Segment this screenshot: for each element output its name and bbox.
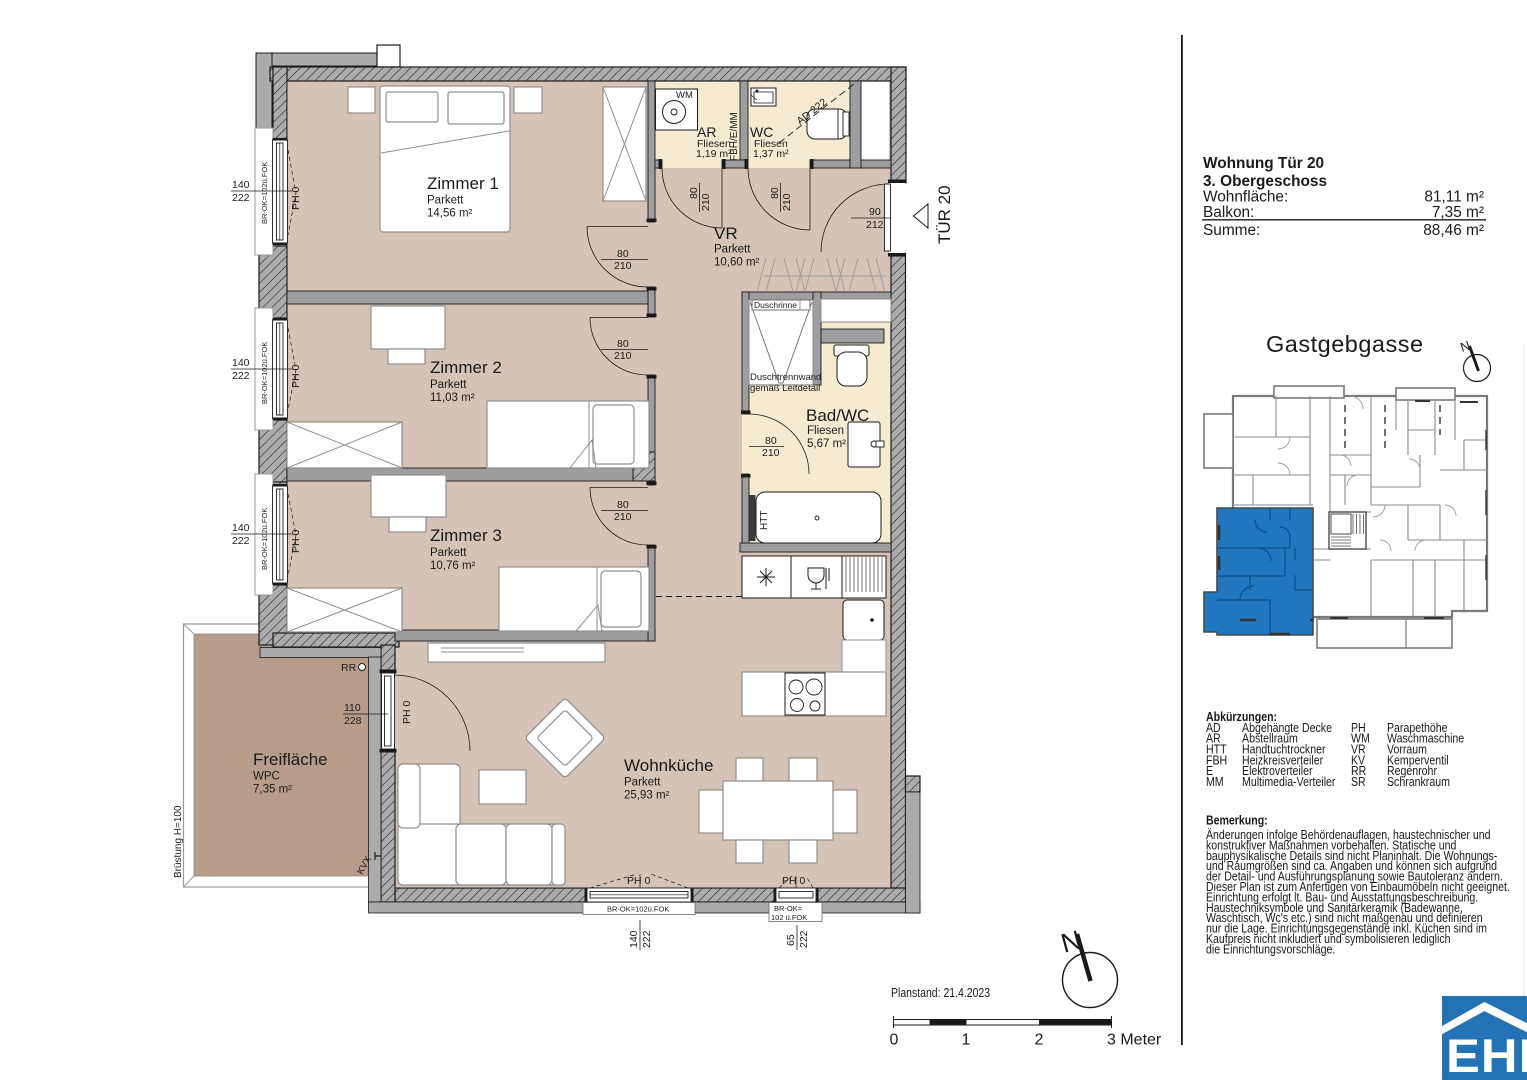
svg-text:1: 1 — [962, 1032, 971, 1049]
svg-text:Planstand: 21.4.2023: Planstand: 21.4.2023 — [891, 986, 990, 1000]
svg-text:BR-OK=102ü.FOK: BR-OK=102ü.FOK — [260, 508, 269, 570]
svg-text:228: 228 — [344, 715, 362, 727]
svg-text:Balkon:: Balkon: — [1203, 204, 1254, 221]
svg-text:BR-OK=102ü.FOK: BR-OK=102ü.FOK — [607, 905, 669, 914]
svg-text:TÜR 20: TÜR 20 — [935, 185, 954, 244]
svg-text:10,60 m²: 10,60 m² — [714, 257, 760, 269]
svg-text:212: 212 — [866, 219, 884, 231]
svg-text:10,76 m²: 10,76 m² — [430, 560, 476, 572]
svg-text:3. Obergeschoss: 3. Obergeschoss — [1203, 173, 1327, 190]
svg-text:81,11 m²: 81,11 m² — [1424, 188, 1484, 205]
svg-text:222: 222 — [232, 535, 250, 547]
svg-text:PH 0: PH 0 — [627, 875, 651, 887]
svg-text:7,35 m²: 7,35 m² — [1432, 204, 1484, 221]
svg-text:222: 222 — [232, 370, 250, 382]
svg-text:Duschrinne: Duschrinne — [754, 300, 797, 310]
svg-text:RR: RR — [341, 662, 357, 674]
svg-text:Gastgebgasse: Gastgebgasse — [1266, 331, 1424, 357]
svg-text:7,35 m²: 7,35 m² — [253, 784, 292, 796]
svg-text:Bemerkung:: Bemerkung: — [1206, 814, 1268, 828]
svg-text:gemäß Leitdetail: gemäß Leitdetail — [750, 383, 820, 394]
svg-text:Multimedia-Verteiler: Multimedia-Verteiler — [1242, 775, 1336, 789]
svg-text:VR: VR — [714, 224, 738, 243]
svg-text:210: 210 — [614, 511, 632, 523]
svg-text:88,46 m²: 88,46 m² — [1423, 222, 1484, 239]
svg-text:PH 0: PH 0 — [290, 186, 302, 210]
svg-text:Summe:: Summe: — [1203, 222, 1260, 239]
svg-text:Parkett: Parkett — [624, 777, 661, 789]
svg-text:Wohnfläche:: Wohnfläche: — [1203, 188, 1288, 205]
svg-text:Duschtrennwand: Duschtrennwand — [750, 372, 821, 383]
svg-text:80: 80 — [617, 338, 629, 350]
svg-text:2: 2 — [1035, 1032, 1044, 1049]
svg-text:11,03 m²: 11,03 m² — [430, 392, 475, 404]
svg-text:110: 110 — [344, 702, 361, 714]
svg-text:PH 0: PH 0 — [290, 364, 302, 388]
svg-text:Bad/WC: Bad/WC — [806, 406, 869, 425]
svg-text:102 ü.FOK: 102 ü.FOK — [771, 913, 807, 922]
svg-text:3 Meter: 3 Meter — [1107, 1032, 1162, 1049]
svg-text:N: N — [1458, 338, 1472, 355]
svg-text:210: 210 — [700, 193, 712, 211]
svg-text:80: 80 — [765, 435, 777, 447]
svg-text:140: 140 — [232, 179, 250, 191]
svg-text:222: 222 — [232, 192, 250, 204]
svg-text:BR-OK=102ü.FOK: BR-OK=102ü.FOK — [260, 342, 269, 404]
svg-text:210: 210 — [781, 193, 793, 211]
svg-text:Fliesen: Fliesen — [807, 425, 844, 437]
svg-text:222: 222 — [641, 930, 653, 948]
svg-text:HTT: HTT — [759, 511, 770, 530]
svg-text:die Einrichtungsvorschläge.: die Einrichtungsvorschläge. — [1206, 943, 1335, 957]
svg-text:14,56 m²: 14,56 m² — [427, 208, 473, 220]
svg-text:PH 0: PH 0 — [290, 529, 302, 553]
svg-text:80: 80 — [617, 499, 629, 511]
svg-text:140: 140 — [232, 522, 250, 534]
svg-text:140: 140 — [628, 930, 640, 948]
svg-text:Wohnküche: Wohnküche — [624, 756, 713, 775]
svg-text:210: 210 — [762, 447, 780, 459]
svg-text:210: 210 — [614, 350, 632, 362]
svg-text:210: 210 — [614, 260, 632, 272]
svg-text:SR: SR — [1351, 775, 1366, 789]
svg-text:5,67 m²: 5,67 m² — [807, 438, 846, 450]
svg-text:BR-OK=: BR-OK= — [774, 904, 803, 913]
svg-text:80: 80 — [688, 187, 700, 199]
svg-text:MM: MM — [1206, 775, 1224, 789]
svg-text:1,37 m²: 1,37 m² — [753, 148, 789, 160]
svg-text:25,93 m²: 25,93 m² — [624, 790, 670, 802]
svg-text:140: 140 — [232, 357, 250, 369]
svg-text:Freifläche: Freifläche — [253, 750, 328, 769]
svg-text:Brüstung H=100: Brüstung H=100 — [173, 805, 184, 878]
svg-text:Zimmer 2: Zimmer 2 — [430, 358, 502, 377]
svg-text:1,19 m²: 1,19 m² — [696, 148, 732, 160]
svg-text:Schrankraum: Schrankraum — [1387, 775, 1450, 789]
svg-text:BR-OK=102ü.FOK: BR-OK=102ü.FOK — [260, 162, 269, 224]
svg-text:WPC: WPC — [253, 771, 280, 783]
svg-text:PH 0: PH 0 — [782, 875, 806, 887]
svg-text:PH 0: PH 0 — [401, 700, 413, 724]
svg-text:EHL: EHL — [1446, 1031, 1527, 1080]
svg-text:Parkett: Parkett — [714, 244, 751, 256]
svg-text:Parkett: Parkett — [430, 547, 467, 559]
svg-text:N: N — [1058, 925, 1085, 959]
svg-text:Wohnung Tür 20: Wohnung Tür 20 — [1203, 155, 1324, 172]
svg-text:222: 222 — [798, 930, 810, 948]
svg-text:Zimmer 1: Zimmer 1 — [427, 174, 499, 193]
svg-text:Zimmer 3: Zimmer 3 — [430, 526, 502, 545]
svg-text:Parkett: Parkett — [427, 195, 464, 207]
svg-text:80: 80 — [769, 187, 781, 199]
svg-text:65: 65 — [785, 934, 797, 946]
svg-text:90: 90 — [869, 206, 881, 218]
svg-text:WM: WM — [676, 90, 693, 101]
svg-text:FBH/E/MM: FBH/E/MM — [729, 112, 740, 161]
svg-text:0: 0 — [890, 1032, 899, 1049]
svg-text:Parkett: Parkett — [430, 379, 467, 391]
svg-text:80: 80 — [617, 248, 629, 260]
